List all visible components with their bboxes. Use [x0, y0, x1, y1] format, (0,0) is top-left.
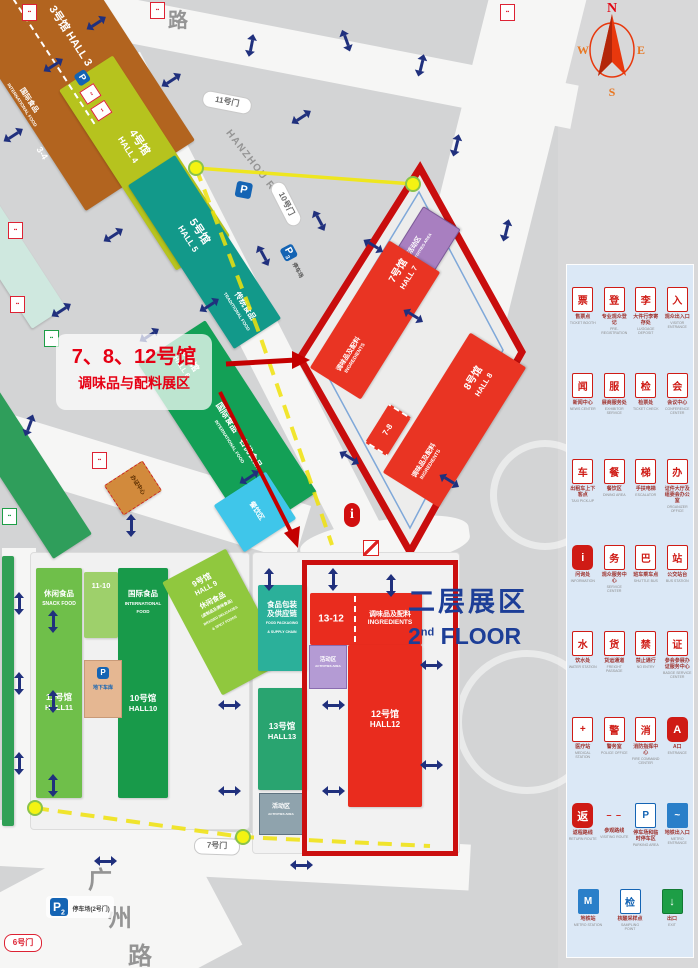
legend-label-zh: 出口 — [667, 916, 677, 922]
organizer-office-icon: 办 — [667, 459, 688, 484]
legend-item: 水饮水处WATER STATION — [568, 631, 597, 679]
legend-label-en: BUS STATION — [666, 579, 689, 583]
hall-11-10-link-label: 11-10 — [84, 582, 118, 591]
road-name-guangzhou-1: 广 — [88, 860, 112, 895]
fire-command-icon: 消 — [635, 717, 656, 742]
facility-icon: ▪▪ — [500, 4, 515, 21]
bus-station-icon: 站 — [667, 545, 688, 570]
hall-13-label: 13号馆HALL13 — [258, 722, 306, 742]
direction-arrow-icon — [18, 598, 21, 609]
legend-item: 站公交站台BUS STATION — [663, 545, 692, 593]
legend-label-zh: A口 — [673, 744, 682, 750]
legend-item: ~地铁出入口METRO ENTRANCE — [663, 803, 692, 847]
legend-label-zh: 大件行李寄存处 — [631, 314, 660, 326]
legend-item: 禁禁止通行NO ENTRY — [631, 631, 660, 679]
road-name-guangzhou-3: 路 — [128, 936, 152, 968]
legend-label-zh: 停车场和临时停车区 — [631, 830, 660, 842]
legend-item: i问询处INFORMATION — [568, 545, 597, 593]
return-route-icon: 返 — [572, 803, 593, 828]
legend-label-en: TICKET CHECK — [633, 407, 659, 411]
legend-item: 办证件大厅及组委会办公室ORGANIZER OFFICE — [663, 459, 692, 513]
legend-item: 警警务室POLICE OFFICE — [600, 717, 629, 765]
parking-icon: P2 — [50, 898, 68, 916]
legend-row: 返返程路线RETURN ROUTE– –参观路线VISITING ROUTEP停… — [567, 803, 693, 847]
legend-item: 车出租车上下客点TAXI PICK-UP — [568, 459, 597, 513]
legend-label-zh: 问询处 — [575, 572, 590, 578]
hall-packaging-label: 食品包装及供应链 FOOD PACKAGING & SUPPLY CHAIN — [258, 601, 306, 636]
legend-item: 货货运通道FREIGHT PASSAGE — [600, 631, 629, 679]
legend-label-en: TICKET BOOTH — [570, 321, 596, 325]
badge-center-icon: 证 — [667, 631, 688, 656]
direction-arrow-icon — [426, 764, 437, 767]
legend-label-en: CONFERENCE CENTER — [663, 407, 692, 415]
legend-label-en: VISITING ROUTE — [600, 835, 628, 839]
legend-row: 水饮水处WATER STATION货货运通道FREIGHT PASSAGE禁禁止… — [567, 631, 693, 679]
legend-label-zh: 班车乘车点 — [633, 572, 658, 578]
shuttle-bus-icon: 巴 — [635, 545, 656, 570]
legend-label-zh: 新闻中心 — [573, 400, 593, 406]
legend-label-zh: 检票处 — [638, 400, 653, 406]
legend-item: 登专业观众登记PRE-REGISTRATION — [600, 287, 629, 335]
legend-label-en: SAMPLING POINT — [616, 923, 645, 931]
escalator-icon — [363, 540, 379, 556]
hall-8-zone-label: 调味品及配料INGREDIENTS — [406, 435, 449, 491]
legend-item: – –参观路线VISITING ROUTE — [600, 803, 629, 847]
legend-label-en: DINING AREA — [603, 493, 626, 497]
legend-label-zh: 售票点 — [575, 314, 590, 320]
legend-label-zh: 公交站台 — [667, 572, 687, 578]
direction-arrow-icon — [332, 574, 335, 585]
direction-arrow-icon — [390, 580, 393, 591]
legend-item: 李大件行李寄存处LUGGAGE DEPOSIT — [631, 287, 660, 335]
second-floor-label: 二层展区 2nd FLOOR — [408, 580, 568, 650]
facility-icon: ▪▪ — [92, 452, 107, 469]
legend-label-en: FREIGHT PASSAGE — [600, 665, 629, 673]
legend-item: 返返程路线RETURN ROUTE — [568, 803, 597, 847]
legend-item: 务观众服务中心SERVICE CENTER — [600, 545, 629, 593]
legend-label-zh: 饮水处 — [575, 658, 590, 664]
legend-label-zh: 观众出入口 — [665, 314, 690, 320]
metro-entrance-icon: ~ — [667, 803, 688, 828]
legend-panel: 票售票点TICKET BOOTH登专业观众登记PRE-REGISTRATION李… — [566, 264, 694, 958]
taxi-icon: 车 — [572, 459, 593, 484]
activity-area-gray-label: 活动区ACTIVITIES AREA — [260, 804, 302, 818]
hall-10: 国际食品INTERNATIONALFOOD 10号馆HALL10 — [118, 568, 168, 798]
legend-item: 服展商服务处EXHIBITOR SERVICE — [600, 373, 629, 415]
legend-item: M地铁站METRO STATION — [574, 889, 603, 931]
legend-row: i问询处INFORMATION务观众服务中心SERVICE CENTER巴班车乘… — [567, 545, 693, 593]
legend-label-en: SERVICE CENTER — [600, 585, 629, 593]
badge-office-label: 办证中心 — [125, 469, 149, 501]
direction-arrow-icon — [328, 704, 339, 707]
legend-label-zh: 手扶电梯 — [636, 486, 656, 492]
legend-label-zh: 专业观众登记 — [600, 314, 629, 326]
legend-row: 闻新闻中心NEWS CENTER服展商服务处EXHIBITOR SERVICE检… — [567, 373, 693, 415]
ticket-icon: 票 — [572, 287, 593, 312]
service-center-icon: 务 — [604, 545, 625, 570]
news-center-icon: 闻 — [572, 373, 593, 398]
legend-label-en: ESCALATOR — [635, 493, 656, 497]
hall-11-zone-label: 休闲食品SNACK FOOD — [36, 590, 82, 607]
direction-arrow-icon — [52, 696, 55, 707]
activity-area-gray-box: 活动区ACTIVITIES AREA — [259, 793, 303, 835]
exhibitor-service-icon: 服 — [604, 373, 625, 398]
gate-7: 7号门 — [194, 837, 241, 856]
callout-line1: 7、8、12号馆 — [56, 340, 212, 369]
legend-row: +医疗站MEDICAL STATION警警务室POLICE OFFICE消消防指… — [567, 717, 693, 765]
facility-icon: ▪▪ — [22, 4, 37, 21]
hall-10-zone-label: 国际食品INTERNATIONALFOOD — [118, 590, 168, 616]
hall-11-10-link: 11-10 — [84, 572, 118, 638]
direction-arrow-icon — [18, 758, 21, 769]
hall-13: 13号馆HALL13 — [258, 688, 306, 790]
hall-7-label: 7号馆HALL 7 — [387, 257, 420, 291]
no-entry-icon: 禁 — [635, 631, 656, 656]
legend-item: 证参会参展办证服务中心BADGE SERVICE CENTER — [663, 631, 692, 679]
legend-item: 梯手扶电梯ESCALATOR — [631, 459, 660, 513]
medical-icon: + — [572, 717, 593, 742]
hall-11: 休闲食品SNACK FOOD 11号馆HALL11 — [36, 568, 82, 798]
exit-icon: ↓ — [662, 889, 683, 914]
legend-item: 检检票处TICKET CHECK — [631, 373, 660, 415]
legend-item: ↓出口EXIT — [658, 889, 687, 931]
direction-arrow-icon — [52, 616, 55, 627]
ticket-check-icon: 检 — [635, 373, 656, 398]
legend-label-zh: 禁止通行 — [636, 658, 656, 664]
legend-label-zh: 返程路线 — [573, 830, 593, 836]
underground-parking-box: P 地下车库 — [84, 660, 122, 718]
direction-arrow-icon — [268, 574, 271, 585]
legend-label-zh: 参会参展办证服务中心 — [663, 658, 692, 670]
direction-arrow-icon — [224, 790, 235, 793]
legend-label-zh: 医疗站 — [575, 744, 590, 750]
parking-sign-p2: P2 停车场(2号门) — [46, 896, 114, 918]
direction-arrow-icon — [100, 860, 111, 863]
underground-parking-label: 地下车库 — [85, 684, 121, 691]
legend-row: 车出租车上下客点TAXI PICK-UP餐餐饮区DINING AREA梯手扶电梯… — [567, 459, 693, 513]
facility-icon: ▪▪ — [10, 296, 25, 313]
legend-label-zh: 地铁出入口 — [665, 830, 690, 836]
legend-label-en: INFORMATION — [571, 579, 595, 583]
legend-label-zh: 警务室 — [607, 744, 622, 750]
legend-label-zh: 货运通道 — [604, 658, 624, 664]
legend-label-en: FIRE COMMAND CENTER — [631, 757, 660, 765]
legend-label-zh: 参观路线 — [604, 828, 624, 834]
legend-label-en: POLICE OFFICE — [601, 751, 628, 755]
legend-label-en: NEWS CENTER — [570, 407, 596, 411]
legend-label-en: LUGGAGE DEPOSIT — [631, 327, 660, 335]
facility-icon: ▪▪ — [2, 508, 17, 525]
facility-icon: ▪▪ — [8, 222, 23, 239]
dining-icon: 餐 — [604, 459, 625, 484]
sampling-point-icon: 检 — [620, 889, 641, 914]
legend-label-en: RETURN ROUTE — [569, 837, 597, 841]
direction-arrow-icon — [18, 678, 21, 689]
direction-arrow-icon — [224, 704, 235, 707]
legend-item: 消消防指挥中心FIRE COMMAND CENTER — [631, 717, 660, 765]
legend-item: 餐餐饮区DINING AREA — [600, 459, 629, 513]
parking-icon: P — [234, 181, 253, 200]
legend-label-zh: 证件大厅及组委会办公室 — [663, 486, 692, 504]
legend-item: 巴班车乘车点SHUTTLE BUS — [631, 545, 660, 593]
parking-icon: P — [635, 803, 656, 828]
police-icon: 警 — [604, 717, 625, 742]
legend-item: 闻新闻中心NEWS CENTER — [568, 373, 597, 415]
legend-label-zh: 核酸采样点 — [617, 916, 642, 922]
legend-label-en: MEDICAL STATION — [568, 751, 597, 759]
legend-label-en: METRO ENTRANCE — [663, 837, 692, 845]
legend-row: 票售票点TICKET BOOTH登专业观众登记PRE-REGISTRATION李… — [567, 287, 693, 335]
legend-label-en: ENTRANCE — [668, 751, 687, 755]
legend-item: 票售票点TICKET BOOTH — [568, 287, 597, 335]
hall-packaging: 食品包装及供应链 FOOD PACKAGING & SUPPLY CHAIN — [258, 585, 306, 671]
legend-label-zh: 消防指挥中心 — [631, 744, 660, 756]
legend-item: AA口ENTRANCE — [663, 717, 692, 765]
legend-label-en: EXIT — [668, 923, 676, 927]
road-name-top: 路 — [168, 4, 188, 33]
parking-icon: P — [97, 667, 109, 679]
legend-label-en: TAXI PICK-UP — [571, 499, 594, 503]
hall-8-label: 8号馆HALL 8 — [462, 364, 495, 398]
legend-item: P停车场和临时停车区PARKING AREA — [631, 803, 660, 847]
legend-item: 检核酸采样点SAMPLING POINT — [616, 889, 645, 931]
legend-item: 入观众出入口VISITOR ENTRANCE — [663, 287, 692, 335]
legend-label-zh: 展商服务处 — [602, 400, 627, 406]
entrance-a-icon: A — [667, 717, 688, 742]
parking-p2-label: 停车场(2号门) — [72, 907, 109, 913]
direction-arrow-icon — [52, 780, 55, 791]
callout-line2: 调味品与配料展区 — [56, 373, 212, 393]
gate-6: 6号门 — [4, 934, 42, 952]
legend-label-zh: 出租车上下客点 — [568, 486, 597, 498]
hall-west-sliver-3 — [2, 556, 14, 826]
callout-halls-7-8-12: 7、8、12号馆 调味品与配料展区 — [56, 334, 212, 410]
legend-label-en: SHUTTLE BUS — [634, 579, 658, 583]
information-icon: i — [572, 545, 593, 570]
parking-sign-road: P — [234, 179, 253, 200]
exhibition-map: 3号馆 HALL 3 国际食品INTERNATIONAL FOOD P ▪▪ ▪… — [0, 0, 698, 968]
luggage-icon: 李 — [635, 287, 656, 312]
information-icon: i — [344, 503, 360, 527]
legend-row: M地铁站METRO STATION检核酸采样点SAMPLING POINT↓出口… — [567, 889, 693, 931]
metro-station-icon: M — [578, 889, 599, 914]
escalator-icon: 梯 — [635, 459, 656, 484]
direction-arrow-icon — [130, 520, 133, 531]
legend-label-zh: 会议中心 — [667, 400, 687, 406]
legend-label-zh: 观众服务中心 — [600, 572, 629, 584]
legend-label-en: BADGE SERVICE CENTER — [663, 671, 692, 679]
legend-label-en: NO ENTRY — [637, 665, 655, 669]
facility-icon: ▪▪ — [90, 100, 112, 122]
registration-icon: 登 — [604, 287, 625, 312]
legend-label-en: EXHIBITOR SERVICE — [600, 407, 629, 415]
legend-label-zh: 地铁站 — [580, 916, 595, 922]
hall-7-zone-label: 调味品及配料INGREDIENTS — [331, 329, 374, 385]
direction-arrow-icon — [426, 664, 437, 667]
legend-label-en: METRO STATION — [574, 923, 602, 927]
legend-label-en: PARKING AREA — [633, 843, 659, 847]
direction-arrow-icon — [328, 790, 339, 793]
visitor-entrance-icon: 入 — [667, 287, 688, 312]
dining-box-label: 餐饮区 — [237, 486, 274, 537]
water-station-icon: 水 — [572, 631, 593, 656]
hall-10-label: 10号馆HALL10 — [118, 694, 168, 714]
direction-arrow-icon — [296, 864, 307, 867]
legend-item: 会会议中心CONFERENCE CENTER — [663, 373, 692, 415]
legend-item: +医疗站MEDICAL STATION — [568, 717, 597, 765]
legend-label-en: PRE-REGISTRATION — [600, 327, 629, 335]
facility-icon: ▪▪ — [150, 2, 165, 19]
freight-icon: 货 — [604, 631, 625, 656]
hall-11-label: 11号馆HALL11 — [36, 693, 82, 713]
conference-center-icon: 会 — [667, 373, 688, 398]
legend-label-en: WATER STATION — [569, 665, 597, 669]
legend-label-en: VISITOR ENTRANCE — [663, 321, 692, 329]
legend-label-zh: 餐饮区 — [607, 486, 622, 492]
legend-label-en: ORGANIZER OFFICE — [663, 505, 692, 513]
visiting-route-icon: – – — [605, 803, 624, 826]
